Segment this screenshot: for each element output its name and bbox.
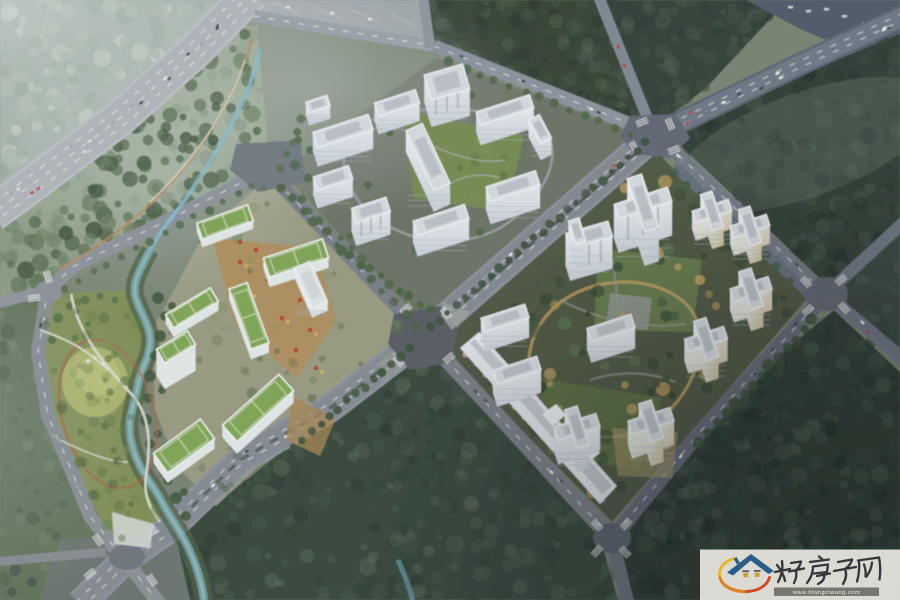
svg-text:www.hfangziwang.com: www.hfangziwang.com <box>792 590 860 596</box>
